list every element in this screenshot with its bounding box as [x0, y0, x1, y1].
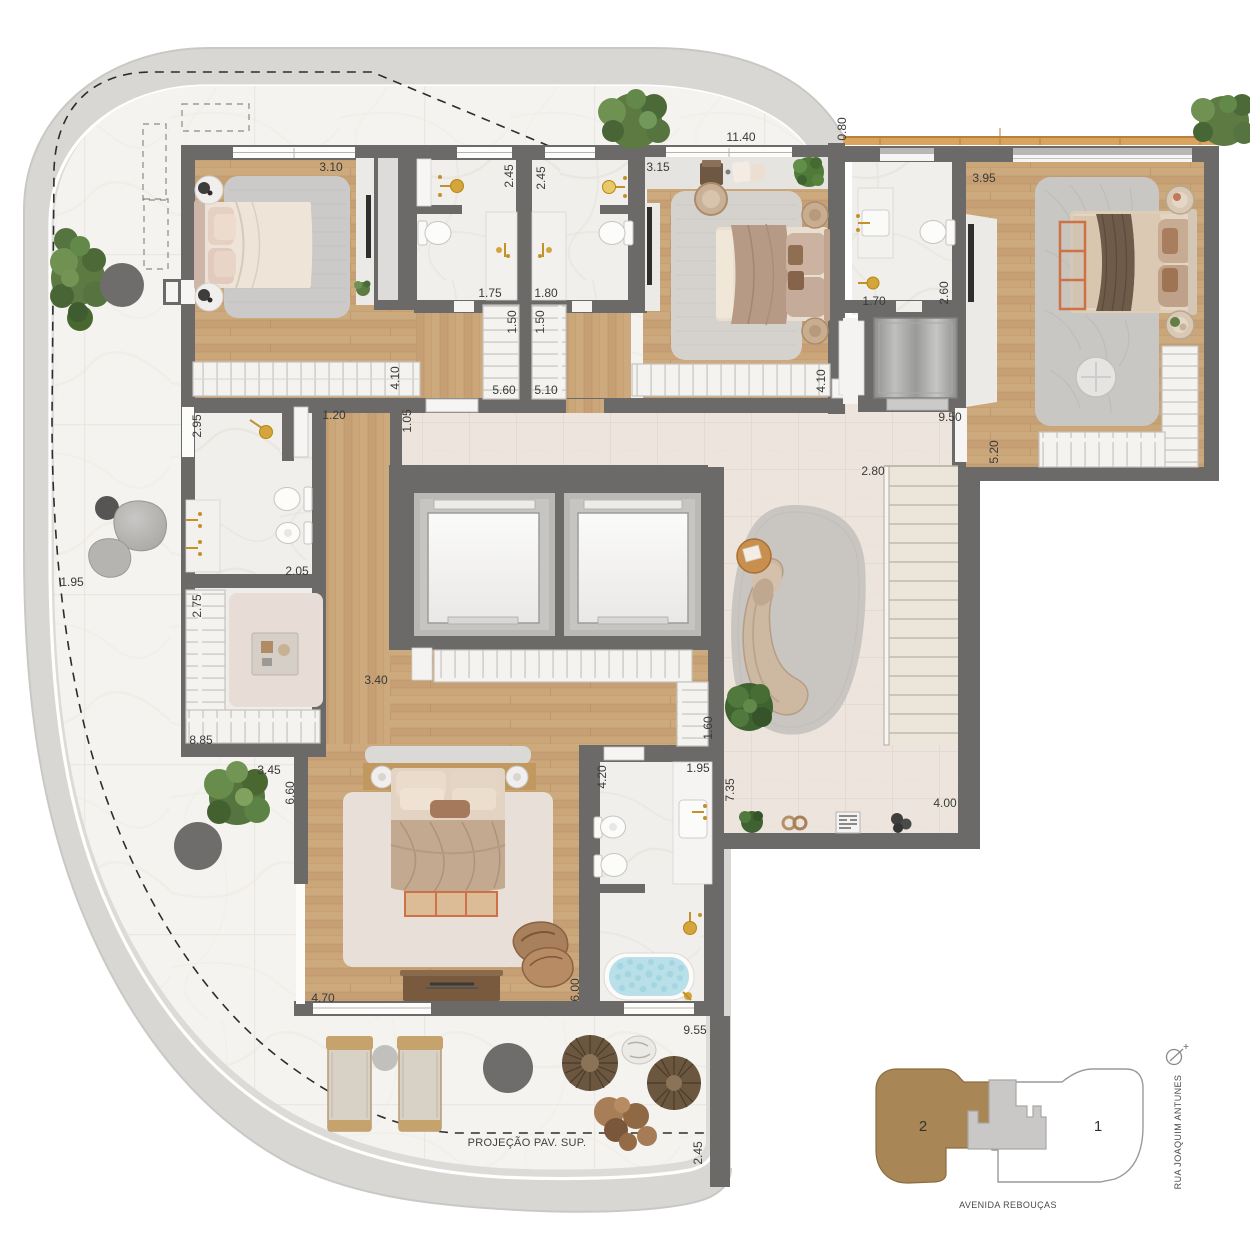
- svg-text:4.10: 4.10: [814, 369, 828, 393]
- svg-text:3.95: 3.95: [972, 171, 996, 185]
- svg-text:1.05: 1.05: [400, 409, 414, 433]
- svg-text:PROJEÇÃO PAV. SUP.: PROJEÇÃO PAV. SUP.: [468, 1136, 587, 1149]
- svg-text:1: 1: [1094, 1118, 1102, 1135]
- svg-text:3.45: 3.45: [257, 763, 281, 777]
- svg-text:2: 2: [919, 1118, 927, 1135]
- svg-text:6.00: 6.00: [568, 978, 582, 1002]
- svg-text:2.75: 2.75: [190, 594, 204, 618]
- svg-text:1.70: 1.70: [862, 294, 886, 308]
- svg-text:9.55: 9.55: [683, 1023, 707, 1037]
- svg-text:4.70: 4.70: [311, 991, 335, 1005]
- svg-text:2.45: 2.45: [534, 166, 548, 190]
- svg-text:1.95: 1.95: [686, 761, 710, 775]
- svg-text:2.45: 2.45: [502, 164, 516, 188]
- svg-text:2.60: 2.60: [937, 281, 951, 305]
- svg-text:1.20: 1.20: [322, 408, 346, 422]
- svg-text:7.35: 7.35: [723, 778, 737, 802]
- svg-text:5.10: 5.10: [534, 383, 558, 397]
- svg-text:3.15: 3.15: [646, 160, 670, 174]
- svg-text:RUA JOAQUIM ANTUNES: RUA JOAQUIM ANTUNES: [1173, 1075, 1183, 1190]
- svg-text:0.80: 0.80: [835, 117, 849, 141]
- svg-text:1.50: 1.50: [505, 310, 519, 334]
- svg-text:8.85: 8.85: [189, 733, 213, 747]
- svg-text:3.40: 3.40: [364, 673, 388, 687]
- svg-text:1.50: 1.50: [533, 310, 547, 334]
- svg-text:5.60: 5.60: [492, 383, 516, 397]
- svg-text:2.45: 2.45: [691, 1141, 705, 1165]
- svg-text:2.80: 2.80: [861, 464, 885, 478]
- svg-text:4.00: 4.00: [933, 796, 957, 810]
- svg-text:4.10: 4.10: [388, 366, 402, 390]
- svg-text:5.20: 5.20: [987, 440, 1001, 464]
- svg-text:3.10: 3.10: [319, 160, 343, 174]
- svg-text:2.05: 2.05: [285, 564, 309, 578]
- svg-text:1.75: 1.75: [478, 286, 502, 300]
- svg-text:2.95: 2.95: [190, 414, 204, 438]
- svg-text:1.80: 1.80: [534, 286, 558, 300]
- svg-text:6.60: 6.60: [283, 781, 297, 805]
- svg-text:1.95: 1.95: [60, 575, 84, 589]
- svg-text:4.20: 4.20: [595, 765, 609, 789]
- svg-text:11.40: 11.40: [726, 130, 755, 144]
- svg-text:AVENIDA REBOUÇAS: AVENIDA REBOUÇAS: [959, 1200, 1057, 1210]
- svg-text:9.50: 9.50: [938, 410, 962, 424]
- svg-text:1.60: 1.60: [701, 716, 715, 740]
